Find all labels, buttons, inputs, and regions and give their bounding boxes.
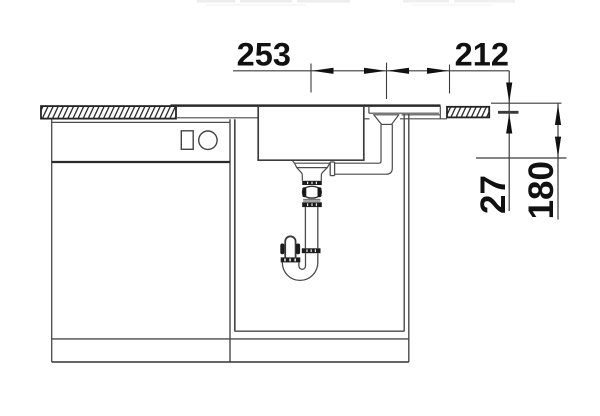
svg-text:253: 253 xyxy=(237,36,291,72)
svg-text:212: 212 xyxy=(455,36,509,72)
svg-text:180: 180 xyxy=(522,161,561,219)
svg-text:27: 27 xyxy=(474,175,513,214)
